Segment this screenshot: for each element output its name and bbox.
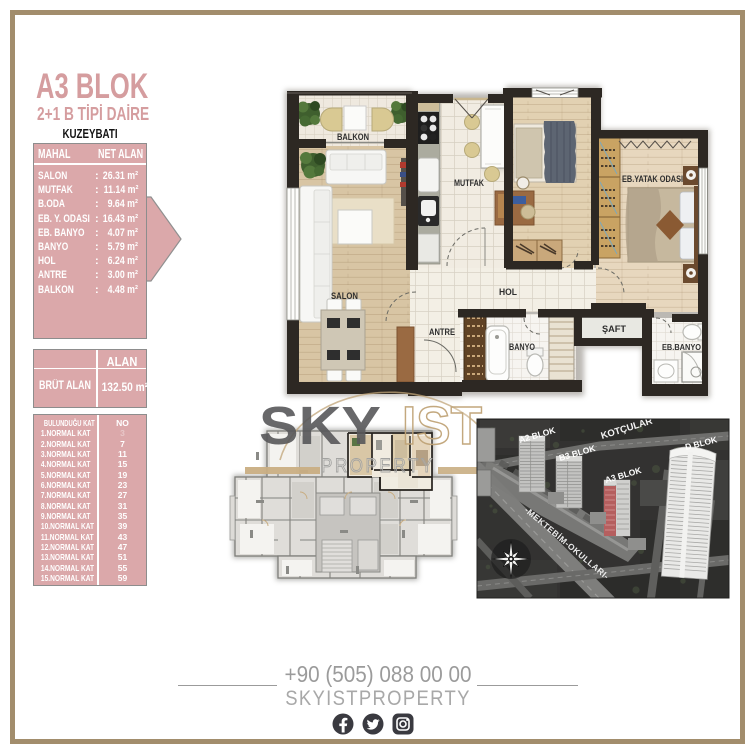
svg-text:MUTFAK: MUTFAK — [454, 178, 484, 188]
svg-text:IST: IST — [402, 396, 482, 456]
svg-text:EB.YATAK ODASI: EB.YATAK ODASI — [622, 174, 683, 184]
svg-text:BANYO: BANYO — [509, 342, 535, 352]
svg-text:PROPERTY: PROPERTY — [321, 456, 435, 477]
svg-text:HOL: HOL — [499, 287, 517, 297]
svg-text:SKY: SKY — [259, 396, 381, 456]
svg-text:BALKON: BALKON — [337, 132, 369, 142]
svg-text:ŞAFT: ŞAFT — [602, 324, 626, 335]
svg-text:ANTRE: ANTRE — [429, 327, 455, 337]
svg-text:SALON: SALON — [331, 291, 358, 301]
svg-text:EB.BANYO: EB.BANYO — [662, 342, 701, 352]
